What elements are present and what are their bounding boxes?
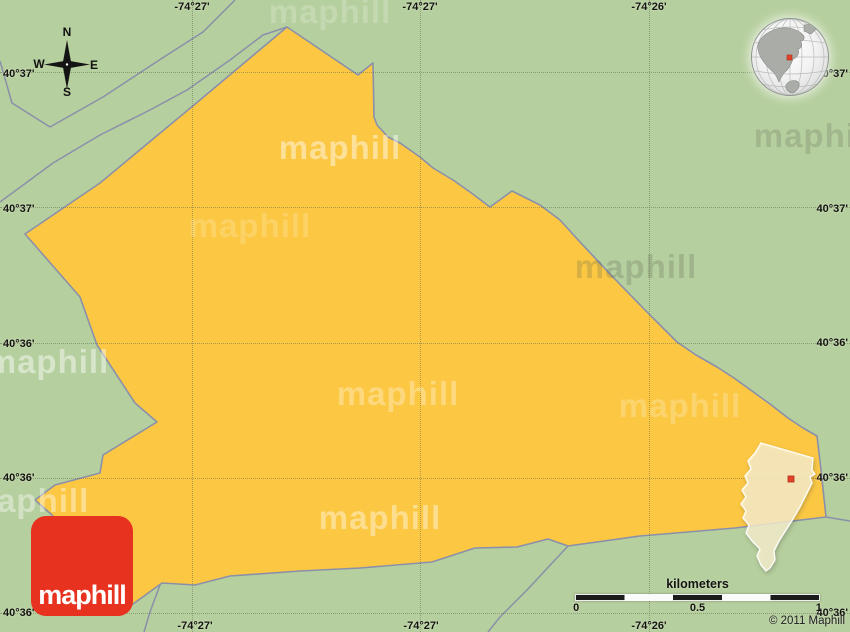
globe-location-marker [787,55,792,60]
coordinate-label: -74°26' [631,1,666,13]
compass-hub [65,63,68,66]
coordinate-label: 40°36' [817,337,849,349]
scalebar-tick: 0 [573,602,579,614]
coordinate-label: 40°36' [3,607,35,619]
coordinate-label: 40°37' [817,203,849,215]
compass-label-e: E [90,58,98,72]
compass-label-s: S [63,85,71,99]
coordinate-label: -74°27' [402,1,437,13]
coordinate-label: 40°36' [3,472,35,484]
coordinate-label: 40°37' [3,68,35,80]
compass-label-w: W [33,57,44,71]
scalebar-title: kilometers [666,577,729,591]
coordinate-label: -74°27' [403,620,438,632]
scalebar-bar [575,594,820,601]
coordinate-label: 40°36' [817,472,849,484]
nj-state-shape [741,443,815,571]
nj-location-marker [788,476,794,482]
scalebar-ticks: 00.51 [575,602,820,614]
copyright: © 2011 Maphill [769,615,845,627]
logo-text: maphill [38,582,126,616]
scalebar-tick: 1 [816,602,822,614]
maphill-logo[interactable]: maphill [31,516,133,616]
coordinate-label: -74°26' [631,620,666,632]
compass-label-n: N [63,25,72,39]
coordinate-label: -74°27' [174,1,209,13]
compass-rose [0,0,140,130]
coordinate-label: 40°36' [3,338,35,350]
map-canvas: maphillmaphillmaphillmaphillmaphillmaphi… [0,0,850,632]
scalebar-tick: 0.5 [690,602,705,614]
globe-icon [748,15,832,99]
coordinate-label: -74°27' [177,620,212,632]
coordinate-label: 40°37' [3,203,35,215]
